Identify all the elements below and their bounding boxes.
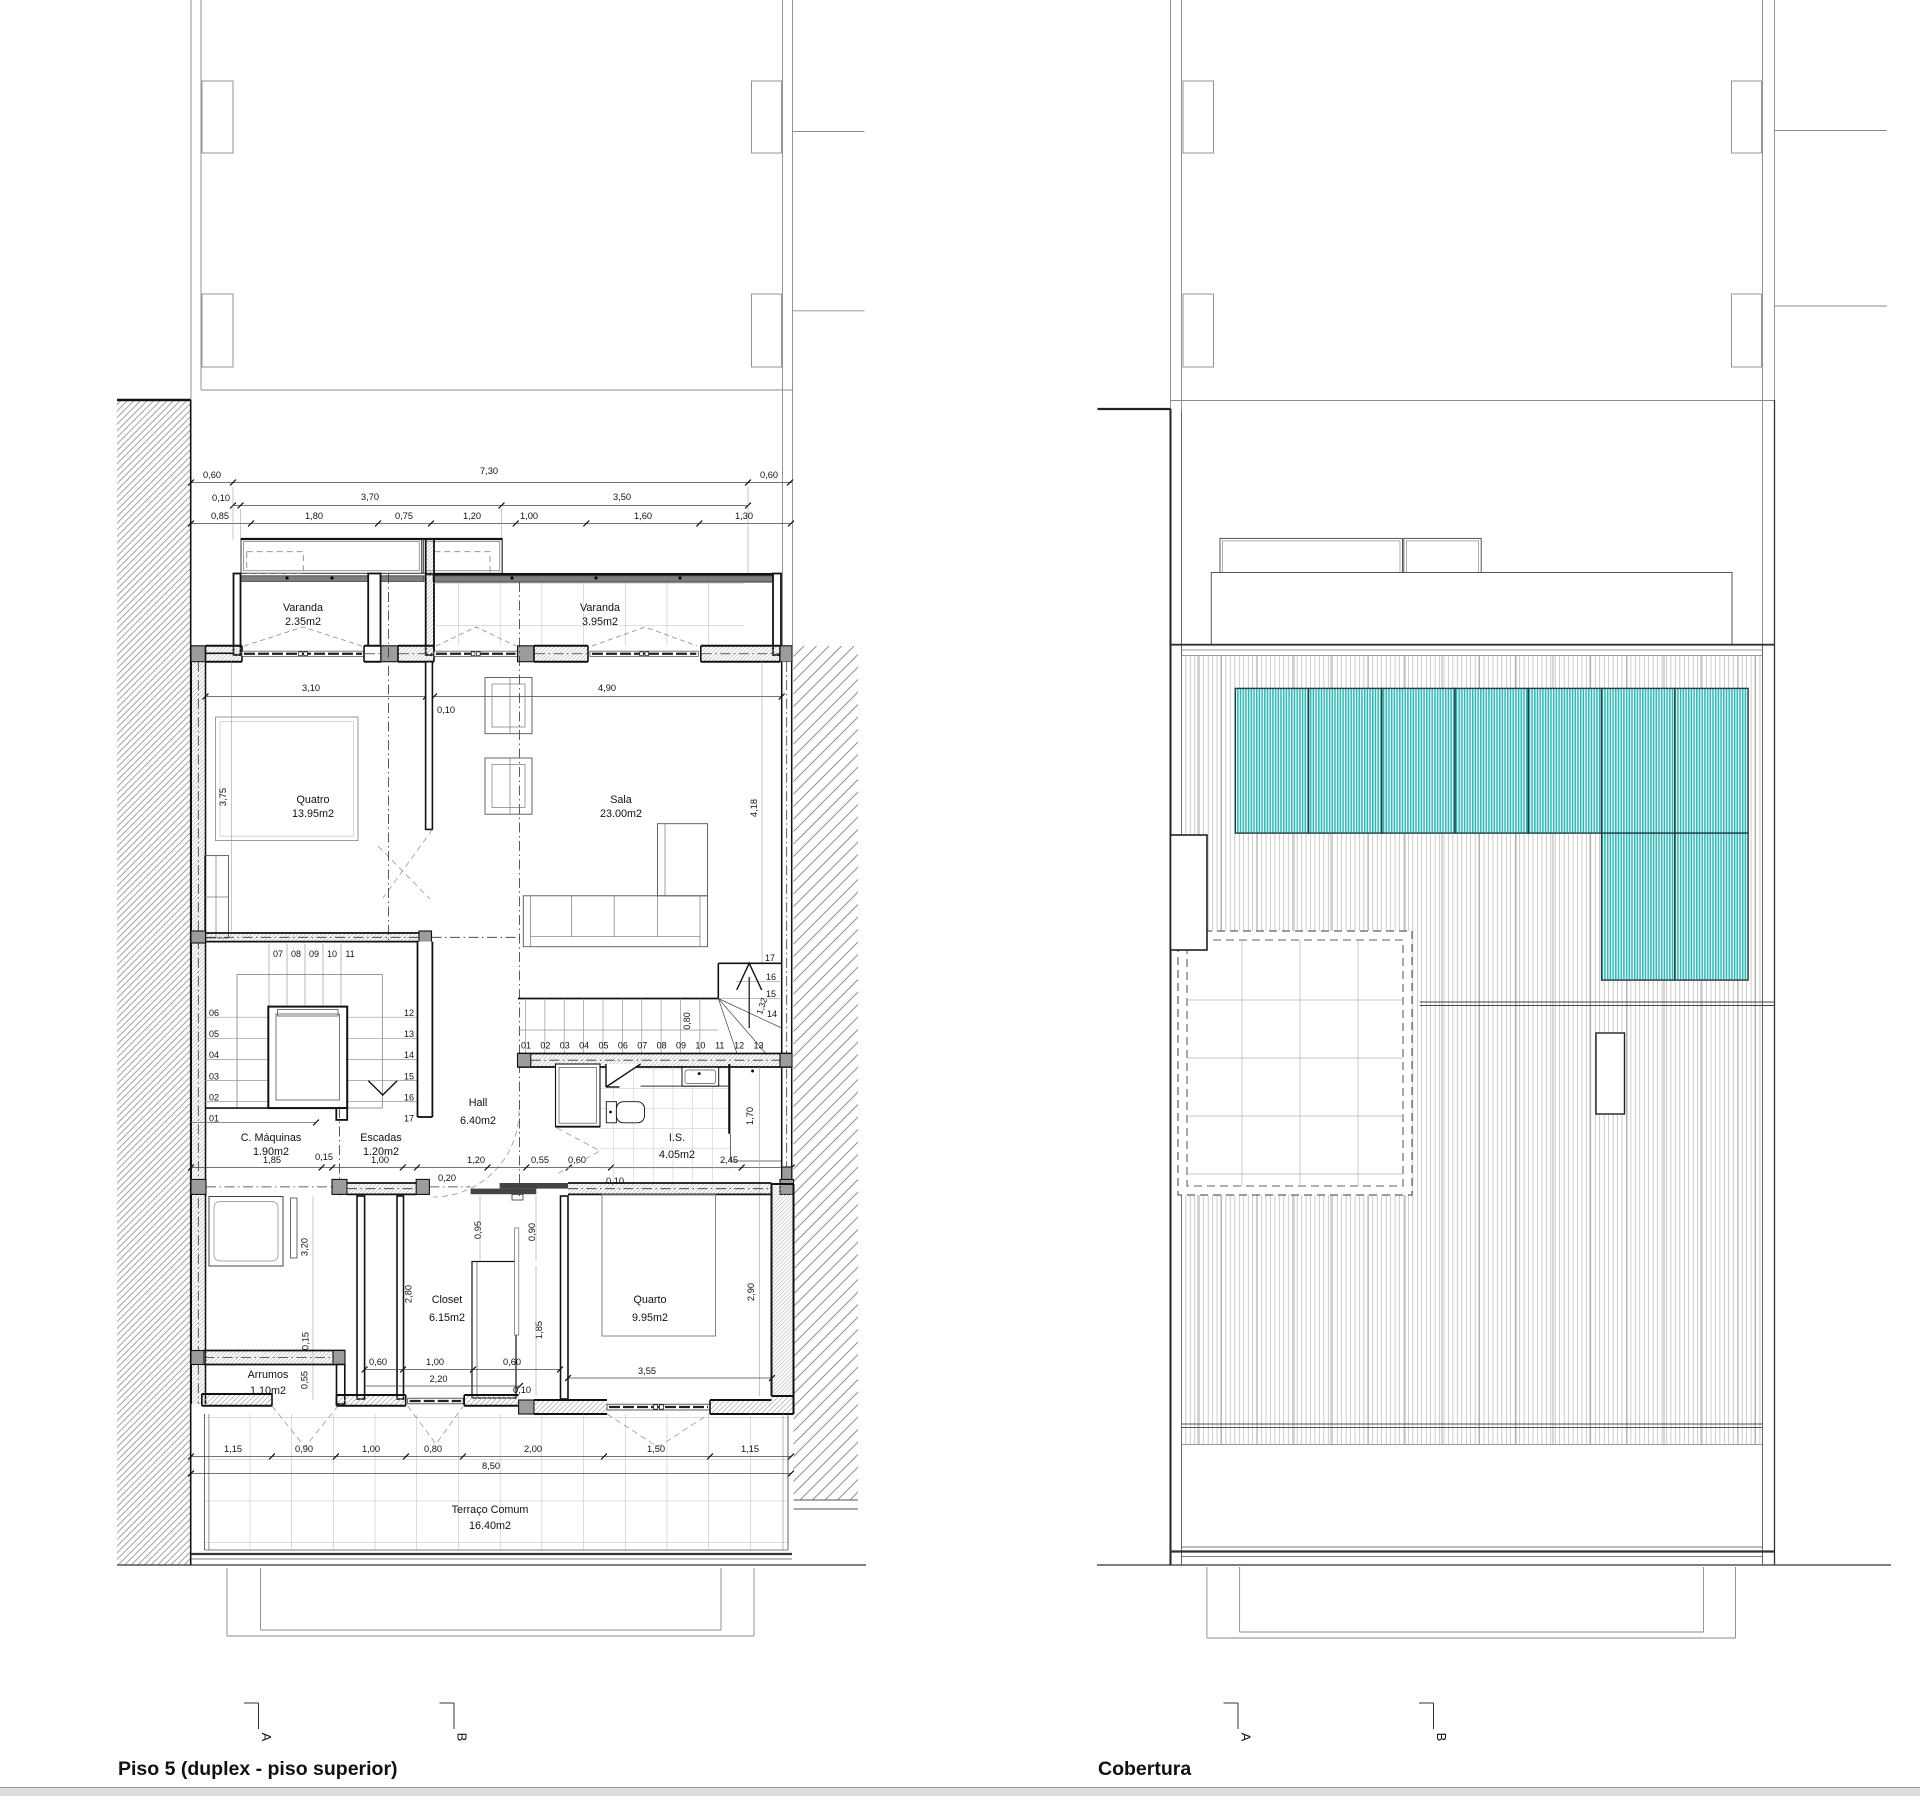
- svg-text:23.00m2: 23.00m2: [600, 808, 642, 820]
- svg-text:11: 11: [715, 1041, 724, 1051]
- svg-text:16: 16: [404, 1092, 414, 1102]
- svg-text:Arrumos: Arrumos: [248, 1369, 289, 1381]
- svg-text:06: 06: [618, 1041, 628, 1051]
- svg-text:0,10: 0,10: [513, 1385, 531, 1395]
- svg-text:03: 03: [209, 1071, 219, 1081]
- svg-text:8,50: 8,50: [482, 1461, 500, 1471]
- svg-text:01: 01: [521, 1041, 531, 1051]
- svg-text:0,15: 0,15: [315, 1152, 333, 1162]
- svg-text:9.95m2: 9.95m2: [632, 1312, 668, 1324]
- svg-text:09: 09: [676, 1041, 686, 1051]
- svg-text:Closet: Closet: [432, 1294, 463, 1306]
- svg-text:0,20: 0,20: [438, 1173, 456, 1183]
- svg-text:03: 03: [560, 1041, 570, 1051]
- svg-text:0,75: 0,75: [395, 511, 413, 521]
- svg-text:0,80: 0,80: [682, 1012, 692, 1030]
- svg-text:0,15: 0,15: [301, 1332, 311, 1350]
- svg-text:Escadas: Escadas: [360, 1132, 402, 1144]
- svg-text:Varanda: Varanda: [283, 602, 323, 614]
- svg-text:4,90: 4,90: [598, 683, 616, 693]
- svg-text:1,20: 1,20: [463, 511, 481, 521]
- svg-text:08: 08: [291, 949, 301, 959]
- svg-text:3,50: 3,50: [613, 492, 631, 502]
- svg-text:1,15: 1,15: [741, 1444, 759, 1454]
- svg-text:A: A: [1239, 1733, 1254, 1742]
- svg-text:17: 17: [404, 1114, 414, 1124]
- svg-text:0,10: 0,10: [212, 493, 230, 503]
- svg-text:1,50: 1,50: [647, 1444, 665, 1454]
- svg-text:0,85: 0,85: [211, 511, 229, 521]
- svg-text:4.05m2: 4.05m2: [659, 1149, 695, 1161]
- svg-text:0,90: 0,90: [295, 1444, 313, 1454]
- svg-text:04: 04: [579, 1041, 589, 1051]
- svg-text:0,90: 0,90: [527, 1223, 537, 1241]
- svg-text:15: 15: [404, 1071, 414, 1081]
- svg-text:2,90: 2,90: [746, 1283, 756, 1301]
- svg-text:Varanda: Varanda: [580, 602, 620, 614]
- svg-text:0,60: 0,60: [503, 1357, 521, 1367]
- svg-text:02: 02: [540, 1041, 550, 1051]
- svg-text:3,10: 3,10: [302, 683, 320, 693]
- svg-text:Sala: Sala: [610, 794, 632, 806]
- svg-text:05: 05: [598, 1041, 608, 1051]
- svg-text:B: B: [1434, 1733, 1449, 1742]
- svg-text:3,75: 3,75: [218, 788, 228, 806]
- svg-text:A: A: [259, 1733, 274, 1742]
- svg-text:Terraço Comum: Terraço Comum: [452, 1504, 529, 1516]
- svg-text:07: 07: [273, 949, 283, 959]
- svg-text:04: 04: [209, 1050, 219, 1060]
- svg-text:C. Máquinas: C. Máquinas: [241, 1132, 302, 1144]
- svg-text:1,60: 1,60: [634, 511, 652, 521]
- svg-text:0,60: 0,60: [760, 470, 778, 480]
- svg-text:01: 01: [209, 1114, 219, 1124]
- svg-text:14: 14: [404, 1050, 414, 1060]
- svg-text:11: 11: [345, 949, 354, 959]
- svg-text:Piso 5 (duplex - piso superior: Piso 5 (duplex - piso superior): [118, 1758, 398, 1780]
- svg-text:6.40m2: 6.40m2: [460, 1115, 496, 1127]
- svg-text:3,55: 3,55: [638, 1366, 656, 1376]
- svg-text:3.95m2: 3.95m2: [582, 616, 618, 628]
- svg-text:2.35m2: 2.35m2: [285, 616, 321, 628]
- svg-text:1,85: 1,85: [263, 1155, 281, 1165]
- svg-text:0,55: 0,55: [300, 1371, 310, 1389]
- svg-text:1,00: 1,00: [362, 1444, 380, 1454]
- svg-text:Quarto: Quarto: [633, 1294, 666, 1306]
- svg-text:13: 13: [753, 1041, 763, 1051]
- svg-text:08: 08: [657, 1041, 667, 1051]
- svg-text:7,30: 7,30: [480, 466, 498, 476]
- svg-text:1,70: 1,70: [745, 1107, 755, 1125]
- svg-text:1,80: 1,80: [305, 511, 323, 521]
- svg-text:1,15: 1,15: [224, 1444, 242, 1454]
- svg-text:Hall: Hall: [469, 1097, 488, 1109]
- svg-text:17: 17: [765, 953, 775, 963]
- svg-text:1,00: 1,00: [371, 1155, 389, 1165]
- svg-text:1,30: 1,30: [735, 511, 753, 521]
- svg-text:Quatro: Quatro: [296, 794, 329, 806]
- svg-text:1,00: 1,00: [426, 1357, 444, 1367]
- svg-text:2,00: 2,00: [524, 1444, 542, 1454]
- svg-text:2,20: 2,20: [429, 1374, 447, 1384]
- svg-text:12: 12: [734, 1041, 744, 1051]
- svg-text:2,80: 2,80: [404, 1285, 414, 1303]
- svg-text:02: 02: [209, 1092, 219, 1102]
- svg-text:14: 14: [767, 1009, 777, 1019]
- svg-text:16: 16: [766, 972, 776, 982]
- svg-text:1,00: 1,00: [520, 511, 538, 521]
- svg-text:6.15m2: 6.15m2: [429, 1312, 465, 1324]
- svg-text:I.S.: I.S.: [669, 1132, 685, 1144]
- svg-text:13.95m2: 13.95m2: [292, 808, 334, 820]
- svg-text:0,95: 0,95: [473, 1221, 483, 1239]
- svg-text:12: 12: [404, 1008, 414, 1018]
- svg-text:0,60: 0,60: [369, 1357, 387, 1367]
- svg-text:09: 09: [309, 949, 319, 959]
- svg-text:16.40m2: 16.40m2: [469, 1520, 511, 1532]
- svg-text:13: 13: [404, 1029, 414, 1039]
- svg-text:07: 07: [637, 1041, 647, 1051]
- svg-text:15: 15: [766, 989, 776, 999]
- svg-text:0,80: 0,80: [424, 1444, 442, 1454]
- svg-text:Cobertura: Cobertura: [1098, 1758, 1191, 1780]
- svg-text:10: 10: [695, 1041, 705, 1051]
- svg-text:05: 05: [209, 1029, 219, 1039]
- svg-text:4,18: 4,18: [749, 799, 759, 817]
- svg-text:06: 06: [209, 1008, 219, 1018]
- svg-text:3,20: 3,20: [300, 1238, 310, 1256]
- svg-text:0,10: 0,10: [437, 705, 455, 715]
- svg-text:B: B: [455, 1733, 470, 1742]
- svg-text:1,20: 1,20: [467, 1155, 485, 1165]
- svg-text:10: 10: [327, 949, 337, 959]
- svg-text:3,70: 3,70: [361, 492, 379, 502]
- svg-text:0,55: 0,55: [531, 1155, 549, 1165]
- svg-text:0,60: 0,60: [203, 470, 221, 480]
- svg-text:1,85: 1,85: [534, 1321, 544, 1339]
